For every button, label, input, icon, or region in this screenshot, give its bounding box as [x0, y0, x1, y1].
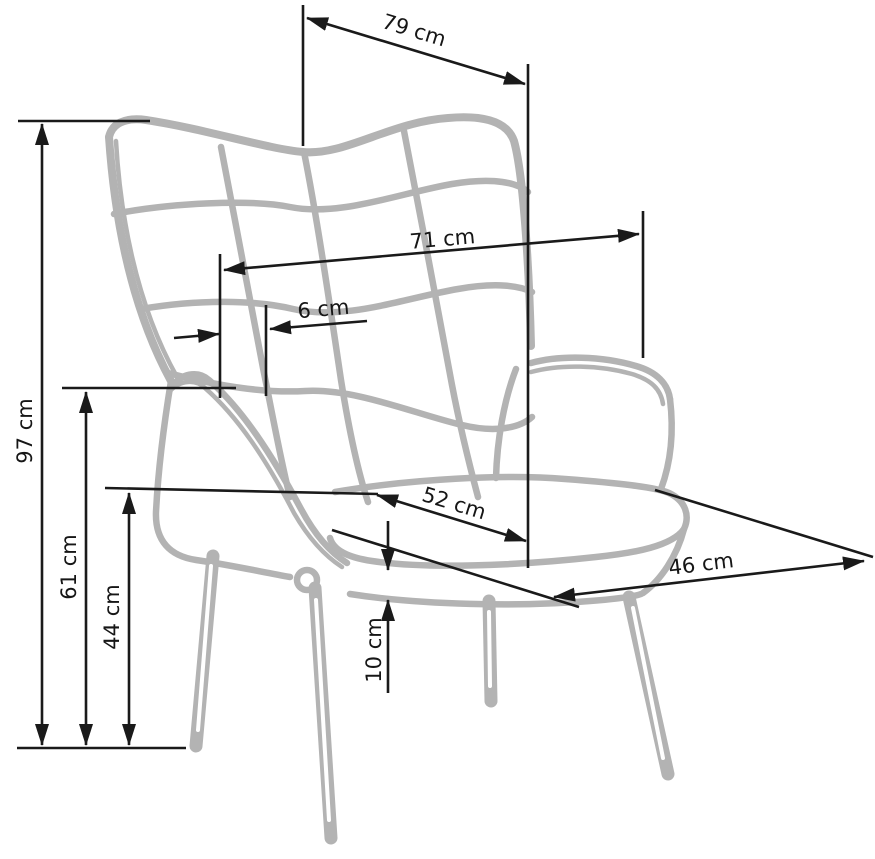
dimension-line [174, 334, 219, 338]
leg-rear-highlight [489, 612, 490, 686]
dimension-6cm-label: 6 cm [296, 295, 350, 323]
left-armrest-inner [170, 382, 342, 567]
right-armrest-outer [661, 399, 672, 489]
diagram-canvas: 79 cm 71 cm 6 cm 97 cm 61 cm [0, 0, 875, 859]
dimension-61cm-label: 61 cm [57, 534, 81, 599]
seat-cushion [330, 477, 687, 566]
dimension-79cm-label: 79 cm [379, 9, 449, 51]
dimension-46cm: 46 cm [332, 490, 873, 607]
left-armrest-outer [175, 374, 347, 563]
chair-dimension-diagram: 79 cm 71 cm 6 cm 97 cm 61 cm [0, 0, 875, 859]
right-armrest-top-inner [531, 367, 663, 404]
right-armrest-top [531, 358, 670, 399]
dimension-44cm: 44 cm [100, 488, 378, 745]
dimension-44cm-label: 44 cm [100, 584, 124, 649]
tuft-row-1 [114, 181, 528, 214]
dimension-97cm-label: 97 cm [13, 398, 37, 463]
dimension-52cm: 52 cm [377, 482, 526, 541]
dimension-10cm-label: 10 cm [362, 617, 386, 682]
dimension-line [270, 321, 367, 329]
chair-drawing [109, 117, 687, 838]
leg-right-highlight [633, 608, 663, 758]
